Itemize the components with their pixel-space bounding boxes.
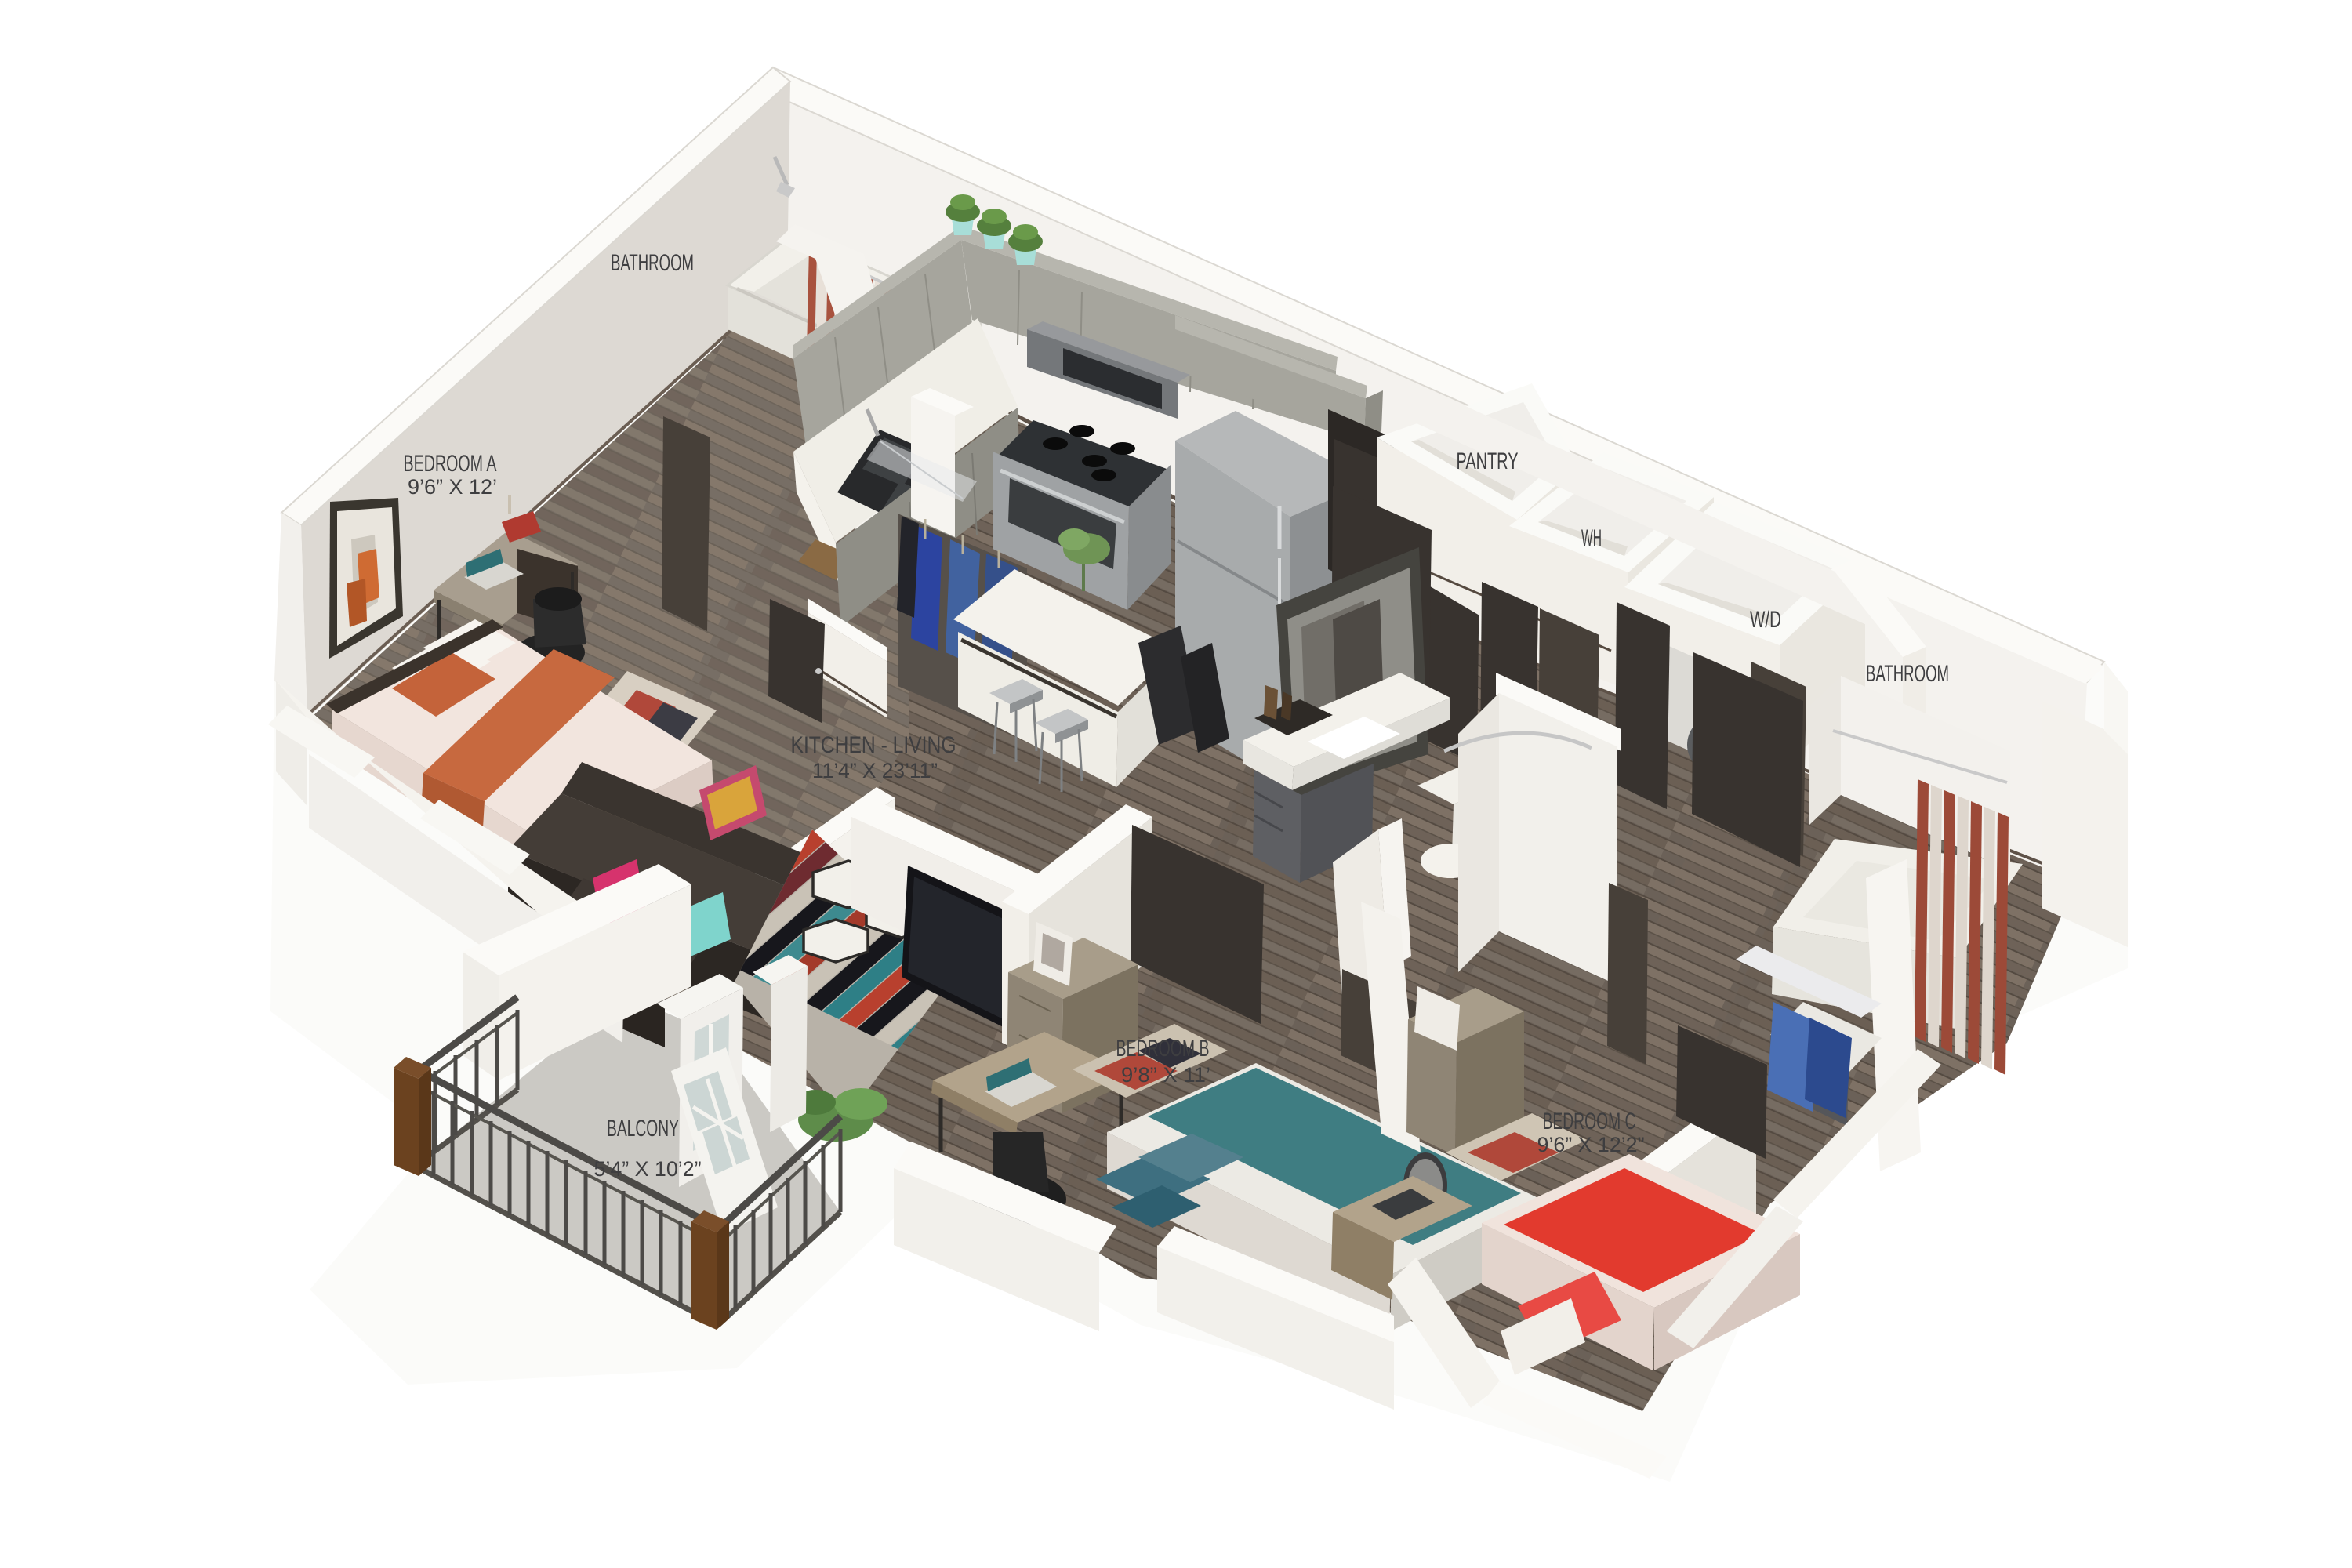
svg-text:W/D: W/D [1750, 607, 1781, 633]
svg-text:9’6” X 12’2”: 9’6” X 12’2” [1537, 1133, 1645, 1156]
svg-text:PANTRY: PANTRY [1457, 448, 1519, 474]
svg-text:BEDROOM B: BEDROOM B [1116, 1036, 1210, 1062]
svg-text:BEDROOM C: BEDROOM C [1543, 1109, 1636, 1134]
svg-text:BATHROOM: BATHROOM [611, 250, 694, 276]
svg-text:BEDROOM A: BEDROOM A [404, 451, 497, 477]
svg-text:9’6” X 12’: 9’6” X 12’ [408, 475, 497, 499]
svg-text:9’8” X 11’: 9’8” X 11’ [1121, 1063, 1210, 1087]
svg-text:11’4” X 23’11”: 11’4” X 23’11” [812, 759, 938, 782]
svg-text:WH: WH [1581, 525, 1602, 551]
svg-text:KITCHEN - LIVING: KITCHEN - LIVING [791, 732, 956, 758]
svg-text:BALCONY: BALCONY [607, 1116, 679, 1142]
svg-text:5’4” X 10’2”: 5’4” X 10’2” [594, 1157, 702, 1181]
svg-text:BATHROOM: BATHROOM [1866, 661, 1949, 687]
